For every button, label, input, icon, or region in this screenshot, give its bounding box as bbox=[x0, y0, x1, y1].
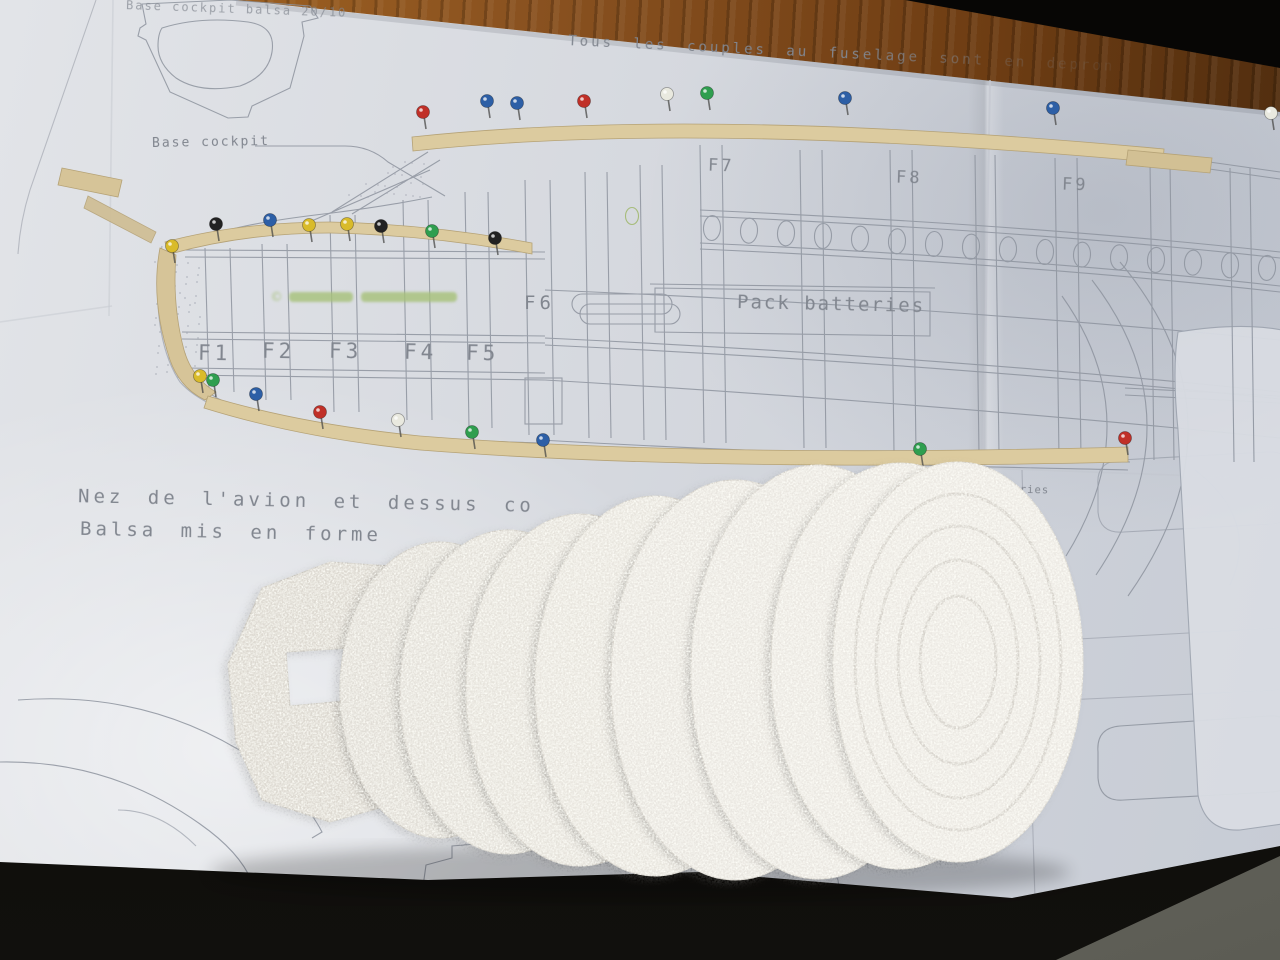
foam-former bbox=[833, 462, 1083, 862]
foam-pieces bbox=[228, 462, 1083, 880]
foam-former-stack bbox=[0, 0, 1280, 960]
photo-model-airplane-plan: Tous les couples au fuselage sont en dep… bbox=[0, 0, 1280, 960]
